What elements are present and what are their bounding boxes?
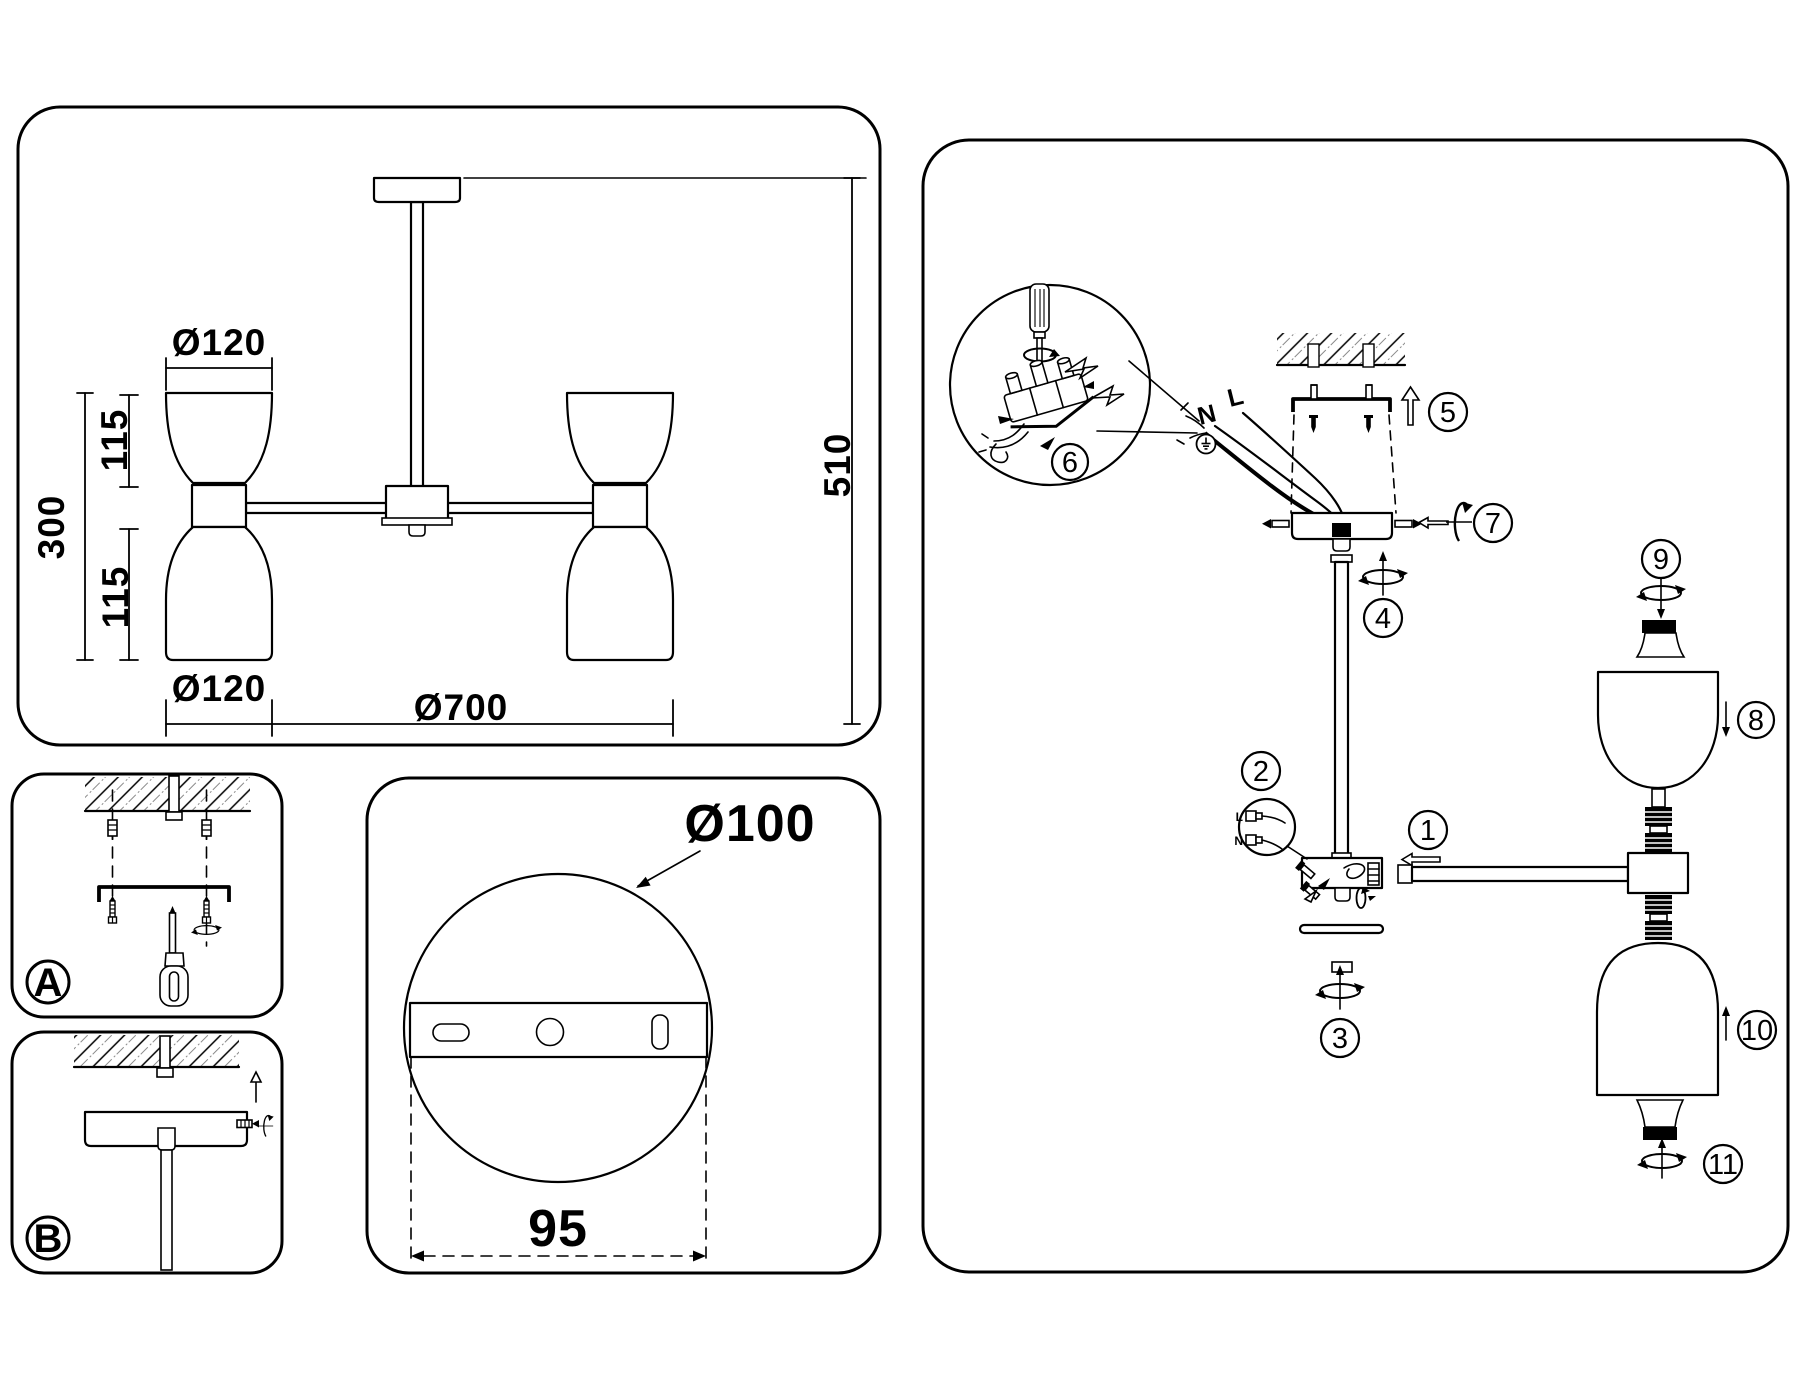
installation-manual-page: Ø120 115 115 300 Ø120 Ø700 xyxy=(0,0,1800,1400)
left-lamp xyxy=(166,393,272,660)
hub-finial xyxy=(1335,888,1350,901)
holder-tube xyxy=(1652,789,1665,807)
hanger-pin-foot xyxy=(157,1068,173,1077)
wire-plug xyxy=(1246,811,1256,821)
insert-arrow-icon xyxy=(1092,386,1124,405)
rotate-icon xyxy=(1637,1138,1687,1178)
elbow-assembly xyxy=(1628,789,1688,940)
rotate-icon xyxy=(1315,965,1365,1009)
dim-dia-top: Ø120 xyxy=(172,322,267,363)
canopy-knob xyxy=(158,1128,175,1150)
ceiling-hatch xyxy=(85,777,250,811)
wire-plug xyxy=(1246,835,1256,845)
arrow-up-icon xyxy=(251,1072,261,1102)
stripped-wires xyxy=(979,424,1028,462)
ceiling-hatch xyxy=(74,1035,239,1067)
wire-plug xyxy=(1256,837,1262,843)
projection-line xyxy=(1389,415,1396,513)
detail-b-label: B xyxy=(34,1217,63,1261)
step-number: 5 xyxy=(1440,397,1456,429)
dim-dia-bottom: Ø120 xyxy=(172,668,267,709)
side-screw-icon xyxy=(1262,519,1289,529)
arm-tip xyxy=(1398,865,1412,883)
step-number: 6 xyxy=(1062,447,1078,479)
mounting-bracket xyxy=(99,887,229,902)
ceiling-slot xyxy=(1363,344,1374,367)
plug-live-label: L xyxy=(1236,810,1243,824)
rotate-icon xyxy=(259,1115,274,1136)
ceiling-hatch xyxy=(1277,333,1405,365)
socket-block xyxy=(192,485,246,527)
panel-detail-a: A xyxy=(12,774,282,1017)
anchor-icon xyxy=(202,820,211,840)
upper-shade xyxy=(1598,672,1718,788)
dimension-annotations: Ø120 115 115 300 Ø120 Ø700 xyxy=(31,178,866,736)
rotate-icon xyxy=(1358,551,1408,595)
wire-neutral-label: N xyxy=(1195,399,1219,431)
hub-terminal xyxy=(1368,863,1379,885)
bracket-stud xyxy=(1311,385,1317,399)
lower-shade xyxy=(567,527,673,660)
lower-shade xyxy=(166,527,272,660)
terminal-block-small xyxy=(1332,523,1351,537)
hub-assembly xyxy=(1295,858,1382,908)
screw-icon xyxy=(1309,415,1318,433)
threaded-nipple xyxy=(1645,895,1672,940)
stem-rod xyxy=(411,202,423,492)
insert-arrow-icon xyxy=(1402,854,1440,866)
dim-upper-height: 115 xyxy=(94,409,135,472)
push-arrow-icon xyxy=(1040,437,1055,450)
upper-shade xyxy=(166,393,272,483)
ceiling-slot xyxy=(1308,344,1319,367)
trim-disc xyxy=(1300,925,1383,933)
hanger-pin xyxy=(160,1036,170,1068)
dim-dia-overall: Ø700 xyxy=(414,687,509,728)
step-number: 4 xyxy=(1375,603,1391,635)
hanger-pin-foot xyxy=(166,812,182,820)
right-lamp xyxy=(567,393,673,660)
stem-rod xyxy=(1335,562,1348,855)
elbow-block xyxy=(1628,853,1688,893)
panel-assembly-steps: 5 N L xyxy=(923,140,1788,1272)
step-number: 9 xyxy=(1653,544,1669,576)
step-number: 10 xyxy=(1741,1015,1773,1047)
mounting-bracket xyxy=(1293,399,1390,412)
plug-neutral-label: N xyxy=(1234,834,1243,848)
panel-fixture-dimensions: Ø120 115 115 300 Ø120 Ø700 xyxy=(18,107,880,745)
hole-spacing-label: 95 xyxy=(528,1200,588,1258)
fixture-front-view xyxy=(166,178,673,660)
installation-diagram: Ø120 115 115 300 Ø120 Ø700 xyxy=(0,0,1800,1400)
canopy-assembly xyxy=(1262,513,1422,551)
leader-arrow xyxy=(636,851,700,888)
stem-rod xyxy=(161,1150,172,1270)
socket-ring xyxy=(1637,1100,1683,1140)
projection-line xyxy=(1291,415,1294,513)
bracket-stud xyxy=(1366,385,1372,399)
socket-block xyxy=(593,485,647,527)
threaded-nipple xyxy=(1645,807,1672,852)
rotate-icon xyxy=(1357,887,1377,908)
lamp-arm xyxy=(1412,867,1628,881)
step-number: 2 xyxy=(1253,756,1269,788)
leader-line xyxy=(1287,846,1307,859)
dim-lower-height: 115 xyxy=(95,566,136,629)
dim-total-height: 300 xyxy=(31,495,72,560)
hanger-pin xyxy=(169,776,179,812)
panel-detail-b: B xyxy=(12,1032,282,1273)
dim-overall-height: 510 xyxy=(817,433,858,498)
canopy-knob xyxy=(1333,539,1350,551)
wiring-detail-bubble: 6 xyxy=(950,284,1199,485)
anchor-icon xyxy=(108,820,117,840)
screw-icon xyxy=(1364,415,1373,433)
hub-plate xyxy=(382,518,452,525)
step-number: 7 xyxy=(1485,508,1501,540)
hole-spacing-dimension: 95 xyxy=(411,1200,706,1262)
lower-shade xyxy=(1597,943,1718,1095)
upper-shade xyxy=(567,393,673,483)
plate-diameter-label: Ø100 xyxy=(684,795,815,853)
rotate-icon xyxy=(1446,502,1473,541)
side-screw-icon xyxy=(1395,519,1422,529)
screwdriver-icon xyxy=(160,906,188,1006)
hub-finial xyxy=(409,525,425,536)
wire-live-label: L xyxy=(1225,382,1247,413)
push-arrow-icon xyxy=(1419,518,1448,529)
arrow-up-icon xyxy=(1722,1006,1730,1040)
detail-a-label: A xyxy=(34,961,63,1005)
ground-icon xyxy=(1197,435,1216,454)
ceiling-canopy xyxy=(374,178,460,202)
step-number: 11 xyxy=(1708,1149,1738,1181)
rotate-icon xyxy=(1636,578,1686,619)
arrow-up-icon xyxy=(1402,387,1419,425)
step-number: 3 xyxy=(1332,1023,1348,1055)
socket-holder xyxy=(1637,620,1684,657)
panel-mounting-plate: Ø100 95 xyxy=(367,778,880,1273)
side-screw-icon xyxy=(237,1120,259,1128)
step-number: 8 xyxy=(1748,705,1764,737)
screw-icon xyxy=(109,896,117,923)
step-number: 1 xyxy=(1420,815,1436,847)
arrow-down-icon xyxy=(1722,702,1730,737)
wire-plug xyxy=(1256,813,1262,819)
screw-icon xyxy=(203,896,211,923)
connector-detail-bubble: L N xyxy=(1234,799,1307,859)
